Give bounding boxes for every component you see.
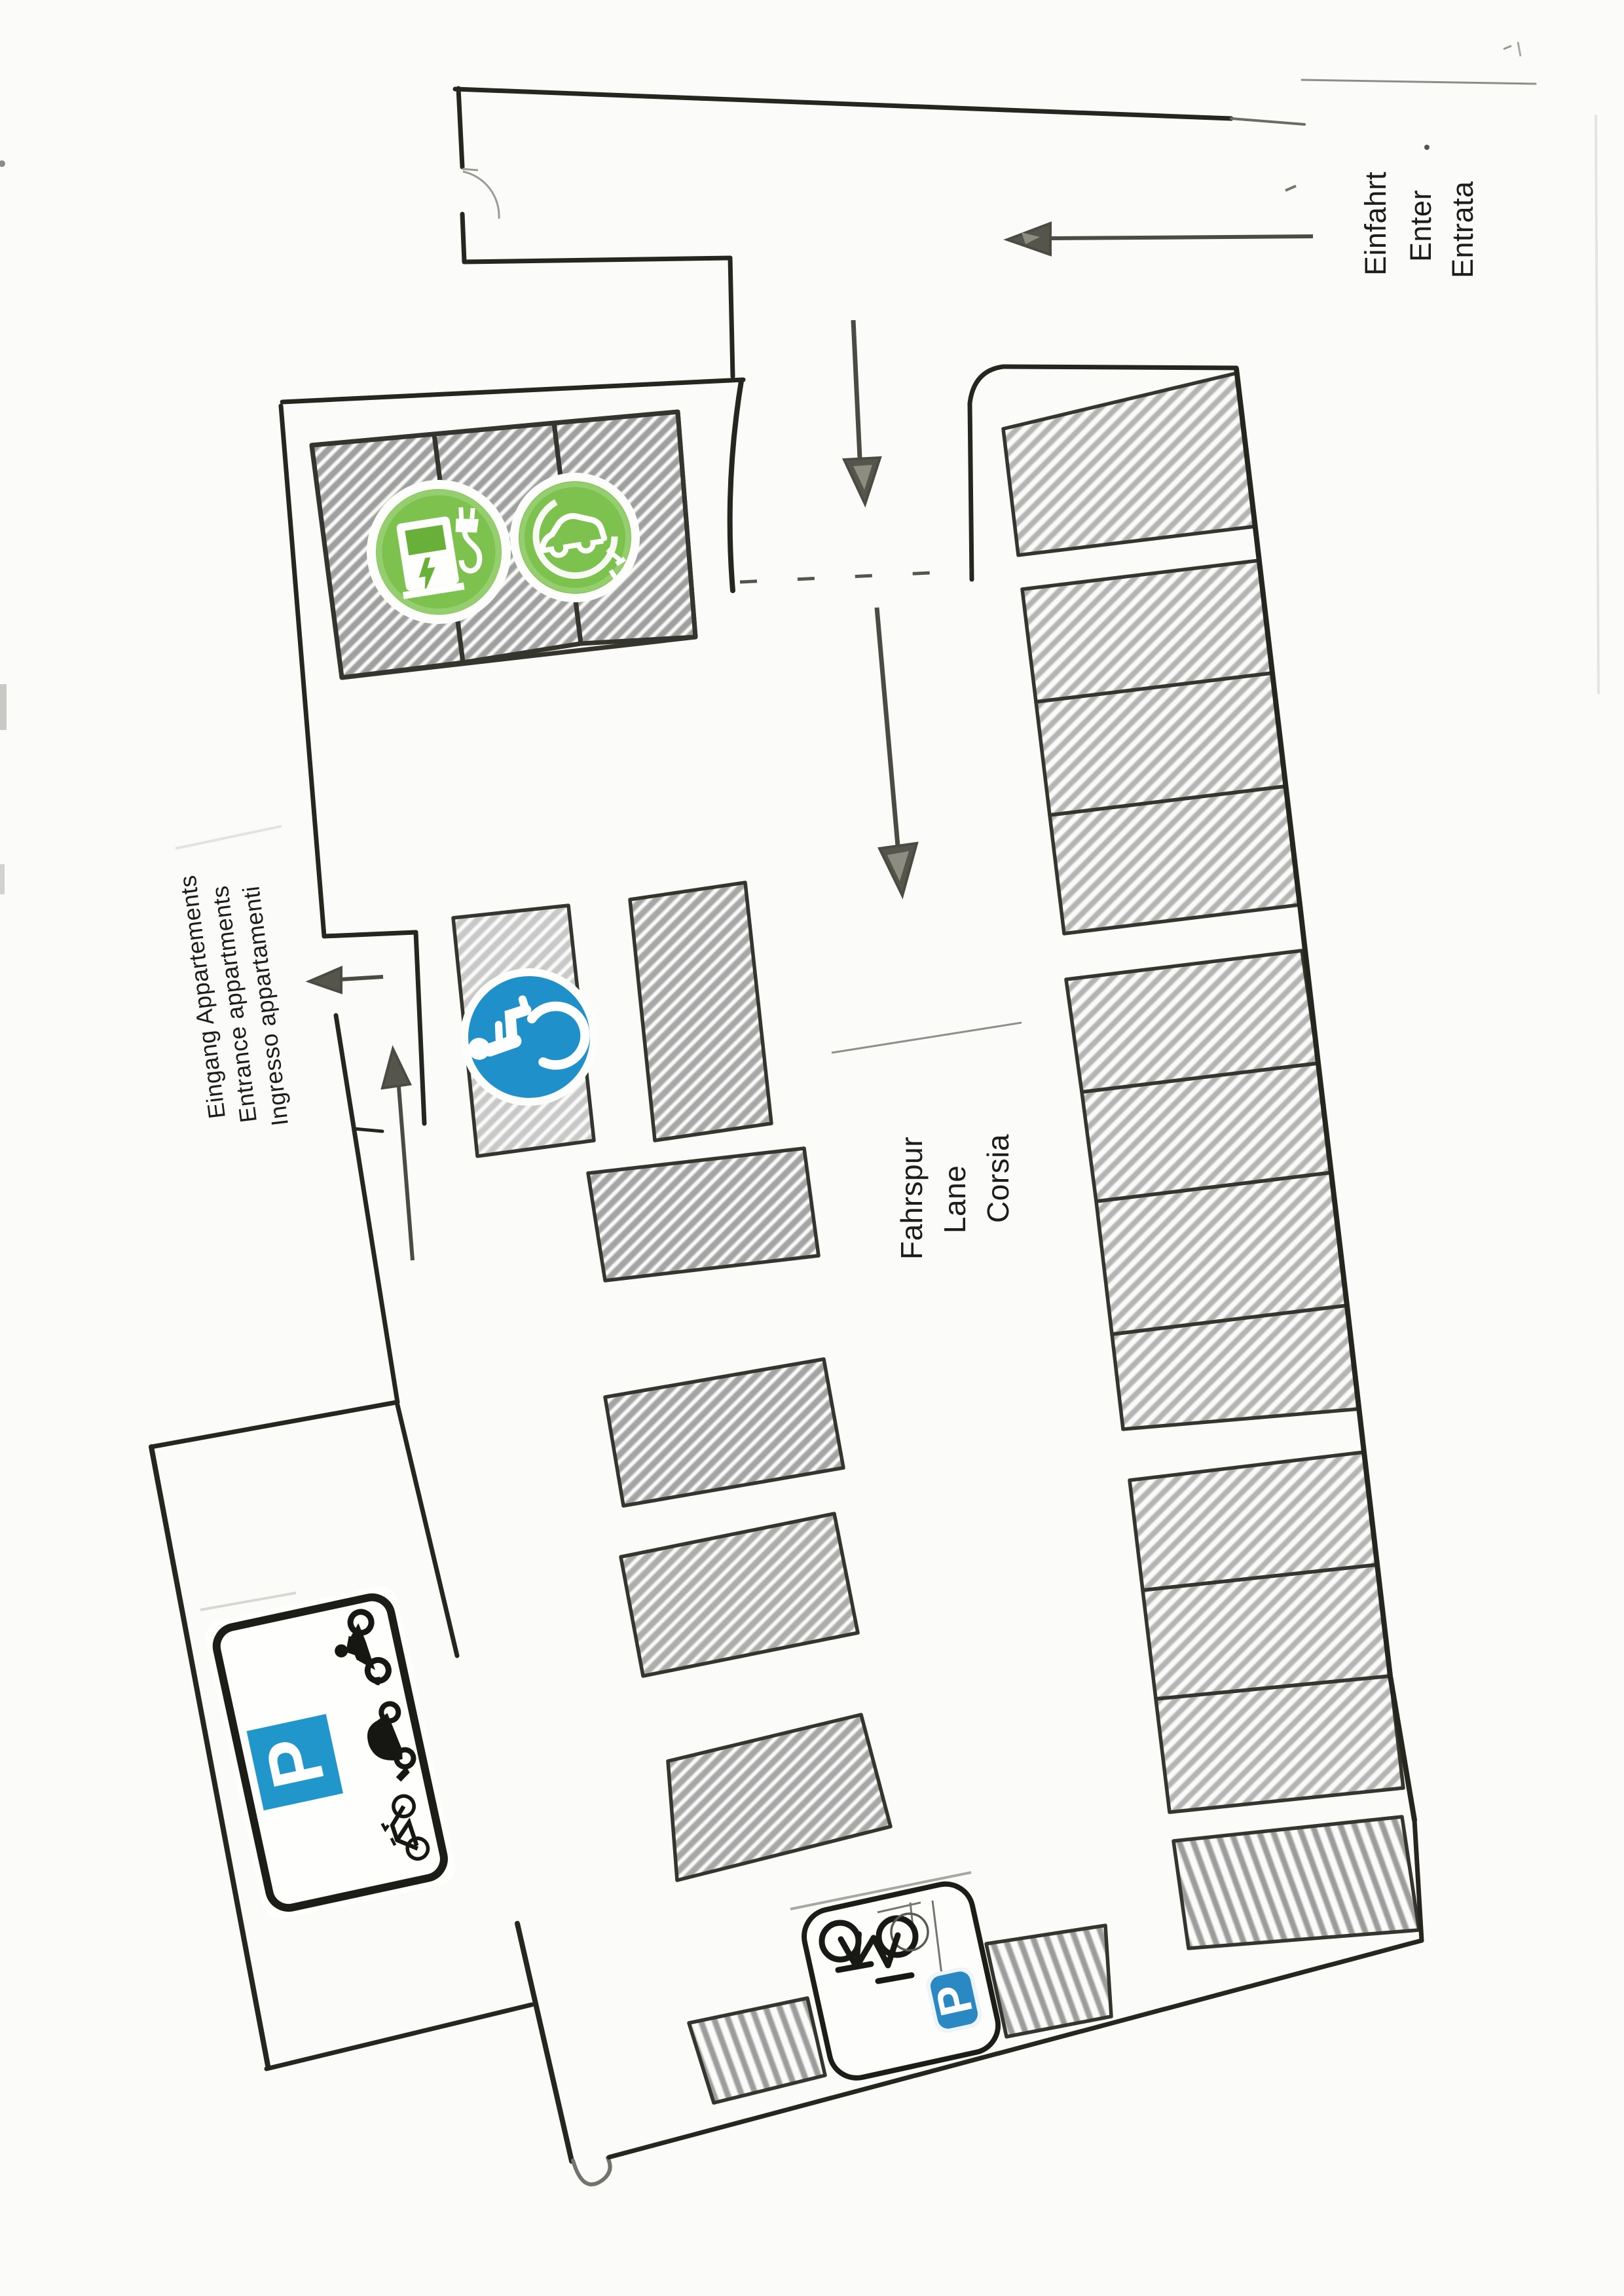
svg-text:Enter: Enter: [1404, 190, 1437, 262]
svg-text:Fahrspur: Fahrspur: [895, 1137, 929, 1260]
svg-text:Lane: Lane: [938, 1165, 972, 1233]
svg-text:Corsia: Corsia: [981, 1134, 1015, 1223]
svg-text:Entrata: Entrata: [1446, 181, 1479, 278]
svg-text:Einfahrt: Einfahrt: [1359, 172, 1392, 276]
